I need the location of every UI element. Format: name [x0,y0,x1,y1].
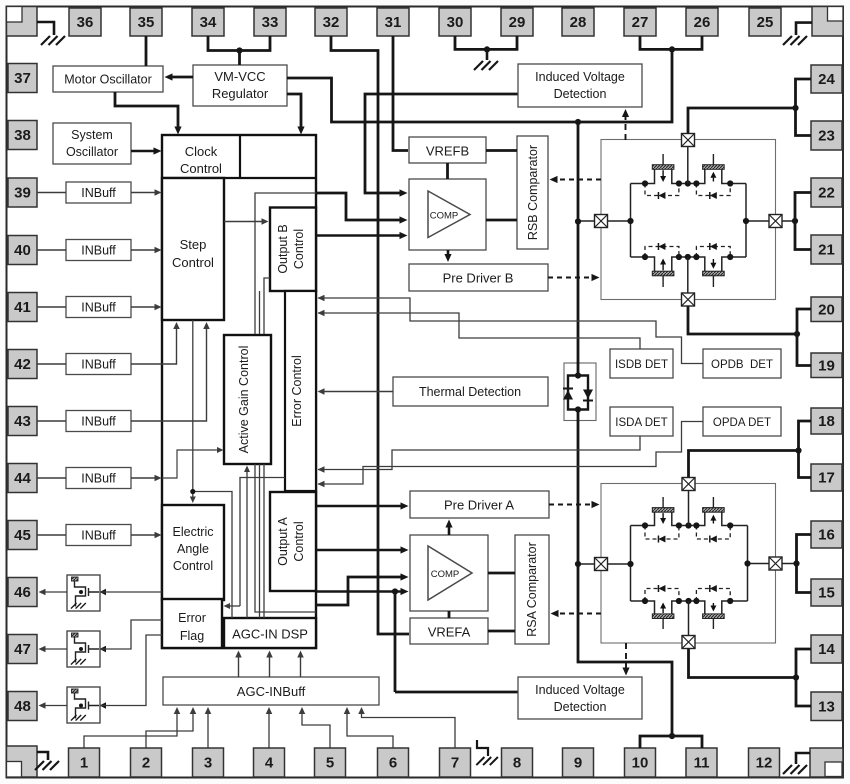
svg-text:8: 8 [513,755,521,772]
svg-text:20: 20 [818,301,835,318]
svg-text:31: 31 [385,14,402,31]
svg-text:Detection: Detection [554,700,607,714]
svg-text:System: System [71,128,113,142]
svg-text:Output A: Output A [276,517,290,566]
svg-text:35: 35 [138,14,155,31]
svg-text:44: 44 [14,470,31,487]
svg-text:INBuff: INBuff [81,529,116,543]
svg-text:47: 47 [14,641,31,658]
svg-text:17: 17 [818,470,835,487]
svg-text:VM-VCC: VM-VCC [214,69,265,84]
svg-text:39: 39 [14,185,31,202]
svg-text:18: 18 [818,413,835,430]
svg-text:13: 13 [818,698,835,715]
svg-text:Control: Control [180,161,222,176]
svg-text:Regulator: Regulator [212,86,269,101]
svg-text:42: 42 [14,356,31,373]
svg-text:Induced Voltage: Induced Voltage [535,70,625,84]
svg-text:15: 15 [818,585,835,602]
svg-text:Pre Driver A: Pre Driver A [444,498,514,513]
svg-text:AGC-IN DSP: AGC-IN DSP [232,627,308,642]
svg-text:VREFA: VREFA [428,625,471,640]
svg-text:1: 1 [80,755,88,772]
svg-text:Step: Step [180,237,207,252]
svg-text:24: 24 [818,71,835,88]
svg-text:46: 46 [14,584,31,601]
svg-text:14: 14 [818,641,835,658]
svg-text:INBuff: INBuff [81,358,116,372]
svg-text:INBuff: INBuff [81,415,116,429]
svg-text:Output B: Output B [276,224,290,273]
svg-text:Flag: Flag [180,629,204,643]
svg-text:23: 23 [818,128,835,145]
svg-text:6: 6 [389,755,397,772]
svg-text:VREFB: VREFB [426,144,469,159]
svg-text:16: 16 [818,527,835,544]
svg-text:RSB Comparator: RSB Comparator [526,145,540,240]
svg-text:Detection: Detection [554,87,607,101]
svg-text:INBuff: INBuff [81,244,116,258]
svg-text:19: 19 [818,357,835,374]
svg-text:INBuff: INBuff [81,186,116,200]
svg-text:Control: Control [292,521,306,561]
svg-text:3: 3 [204,755,212,772]
svg-text:41: 41 [14,299,31,316]
svg-text:INBuff: INBuff [81,472,116,486]
svg-text:INBuff: INBuff [81,301,116,315]
svg-text:ISDB DET: ISDB DET [615,359,668,371]
svg-text:AGC-INBuff: AGC-INBuff [237,684,306,699]
svg-text:37: 37 [14,70,31,87]
svg-text:10: 10 [632,755,649,772]
svg-text:25: 25 [757,14,774,31]
svg-text:26: 26 [694,14,711,31]
svg-text:11: 11 [694,755,710,772]
svg-text:32: 32 [323,14,340,31]
svg-text:27: 27 [632,14,649,31]
svg-text:RSA Comparator: RSA Comparator [525,542,539,636]
svg-text:21: 21 [818,242,835,259]
svg-text:12: 12 [756,755,773,772]
svg-text:33: 33 [262,14,279,31]
svg-text:30: 30 [447,14,464,31]
svg-text:45: 45 [14,527,31,544]
svg-text:Thermal Detection: Thermal Detection [419,385,521,399]
svg-text:Error Control: Error Control [290,355,304,427]
svg-text:Electric: Electric [173,525,214,539]
svg-text:Control: Control [292,229,306,269]
svg-text:43: 43 [14,413,31,430]
svg-text:Angle: Angle [177,542,209,556]
svg-text:22: 22 [818,185,835,202]
svg-text:Induced Voltage: Induced Voltage [535,683,625,697]
svg-text:34: 34 [200,14,217,31]
svg-text:Motor Oscillator: Motor Oscillator [64,73,152,87]
svg-text:36: 36 [77,14,94,31]
svg-text:7: 7 [451,755,459,772]
svg-text:9: 9 [574,755,582,772]
svg-text:Pre Driver B: Pre Driver B [443,271,514,286]
svg-text:Clock: Clock [185,144,218,159]
svg-text:COMP: COMP [431,569,460,580]
svg-text:OPDB DET: OPDB DET [711,359,773,371]
svg-text:COMP: COMP [430,211,459,222]
svg-text:4: 4 [265,755,274,772]
svg-text:48: 48 [14,698,31,715]
svg-text:29: 29 [509,14,526,31]
svg-text:28: 28 [570,14,587,31]
svg-text:38: 38 [14,127,31,144]
svg-text:40: 40 [14,242,31,259]
svg-text:Error: Error [178,611,206,625]
svg-text:ISDA DET: ISDA DET [615,417,667,429]
svg-text:Control: Control [172,255,214,270]
svg-text:OPDA DET: OPDA DET [713,417,771,429]
svg-text:Control: Control [173,559,213,573]
svg-text:Oscillator: Oscillator [66,145,118,159]
svg-text:5: 5 [326,755,334,772]
svg-text:2: 2 [142,755,150,772]
svg-text:Active Gain Control: Active Gain Control [237,346,251,454]
